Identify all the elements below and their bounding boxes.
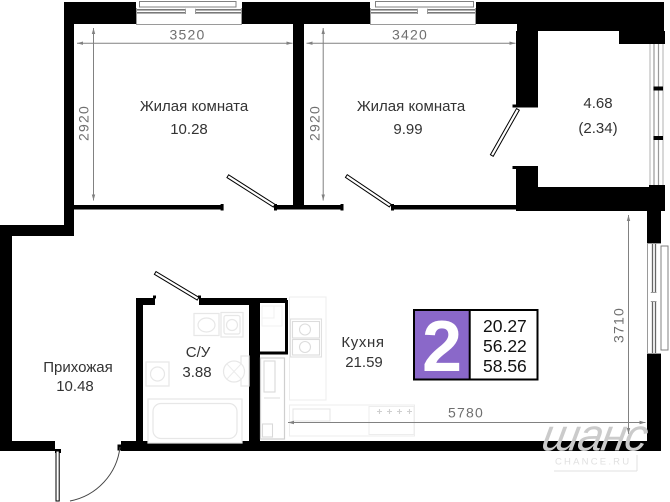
svg-text:С/У: С/У xyxy=(186,344,211,361)
svg-text:20.27: 20.27 xyxy=(483,316,527,336)
svg-text:3520: 3520 xyxy=(170,27,206,43)
svg-text:56.22: 56.22 xyxy=(483,336,527,356)
svg-text:Прихожая: Прихожая xyxy=(43,359,113,376)
svg-text:9.99: 9.99 xyxy=(393,121,422,138)
svg-text:21.59: 21.59 xyxy=(345,354,383,371)
svg-text:2: 2 xyxy=(422,307,462,387)
svg-text:2920: 2920 xyxy=(76,105,92,141)
svg-text:Жилая комната: Жилая комната xyxy=(357,98,466,115)
svg-text:5780: 5780 xyxy=(448,405,484,421)
svg-text:(2.34): (2.34) xyxy=(578,120,617,137)
svg-text:3420: 3420 xyxy=(392,27,428,43)
svg-text:CHANCE.RU: CHANCE.RU xyxy=(555,457,631,468)
svg-text:шанс: шанс xyxy=(538,410,652,461)
svg-text:Кухня: Кухня xyxy=(341,334,384,351)
svg-text:3710: 3710 xyxy=(611,307,627,343)
svg-text:10.28: 10.28 xyxy=(170,121,208,138)
svg-text:3.88: 3.88 xyxy=(182,364,211,381)
svg-text:2920: 2920 xyxy=(307,105,323,141)
svg-text:10.48: 10.48 xyxy=(56,378,94,395)
svg-text:4.68: 4.68 xyxy=(583,95,612,112)
svg-text:58.56: 58.56 xyxy=(483,356,527,376)
svg-text:Жилая комната: Жилая комната xyxy=(140,98,249,115)
